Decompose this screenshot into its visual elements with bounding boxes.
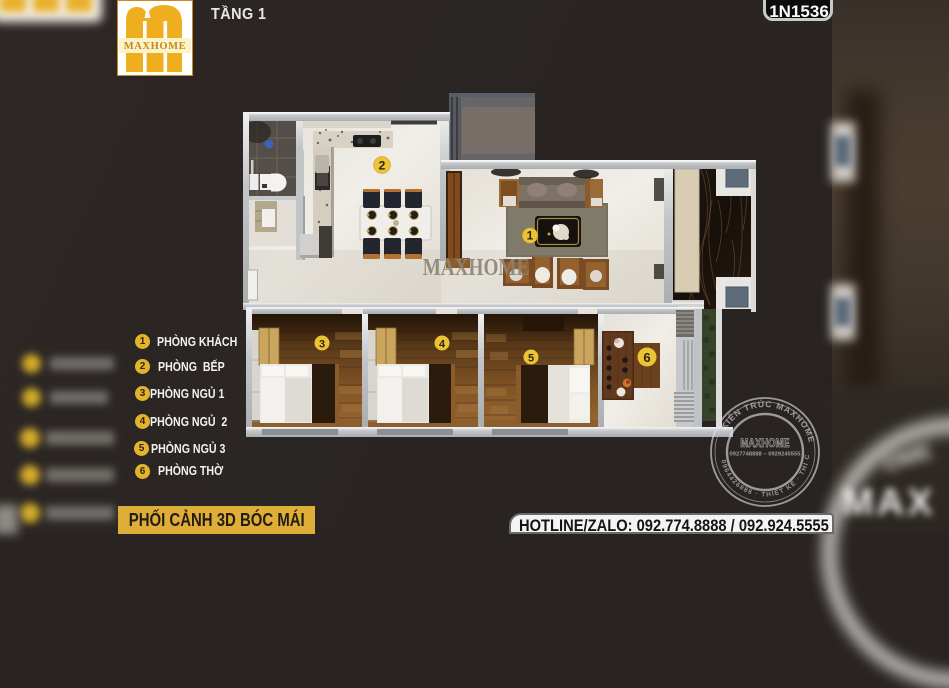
- svg-text:MAXHOME: MAXHOME: [740, 437, 789, 450]
- svg-text:0927748888 – 0929245555: 0927748888 – 0929245555: [730, 452, 802, 458]
- svg-text:3: 3: [319, 339, 325, 351]
- svg-text:MAXHOME: MAXHOME: [423, 254, 530, 281]
- svg-text:5: 5: [528, 353, 534, 365]
- svg-text:6: 6: [643, 350, 650, 365]
- svg-text:4: 4: [439, 339, 446, 351]
- svg-text:1: 1: [527, 229, 534, 243]
- svg-text:2: 2: [379, 159, 386, 173]
